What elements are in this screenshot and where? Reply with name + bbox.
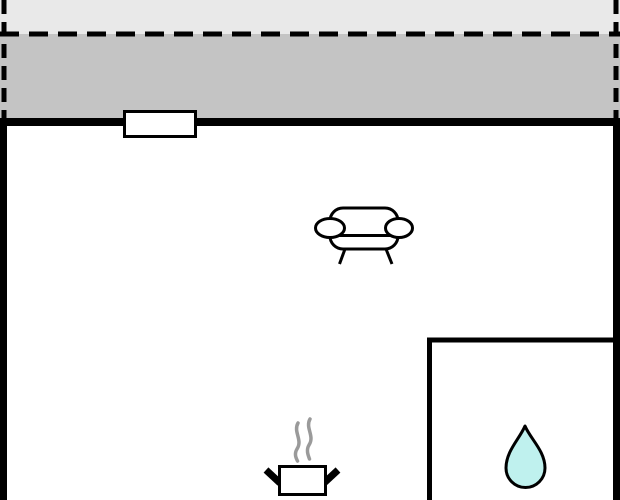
- floor-plan: [0, 0, 620, 500]
- sofa-leg-left: [340, 249, 346, 264]
- balcony-zone: [0, 34, 620, 122]
- pot-body: [280, 467, 326, 495]
- steam-line-left: [295, 423, 299, 461]
- cooking-pot-icon: [266, 467, 338, 495]
- sofa-icon: [316, 208, 413, 264]
- water-drop-icon: [506, 426, 545, 488]
- window-marker: [125, 112, 196, 137]
- exterior-margin-zone: [0, 0, 620, 34]
- sofa-leg-right: [386, 249, 392, 264]
- steam-line-right: [307, 419, 311, 459]
- pot-handle-left: [266, 470, 280, 483]
- sofa-armrest-right: [386, 219, 413, 238]
- floor-plan-canvas: [0, 0, 620, 500]
- sofa-armrest-left: [316, 219, 345, 238]
- steam-icon: [295, 419, 311, 461]
